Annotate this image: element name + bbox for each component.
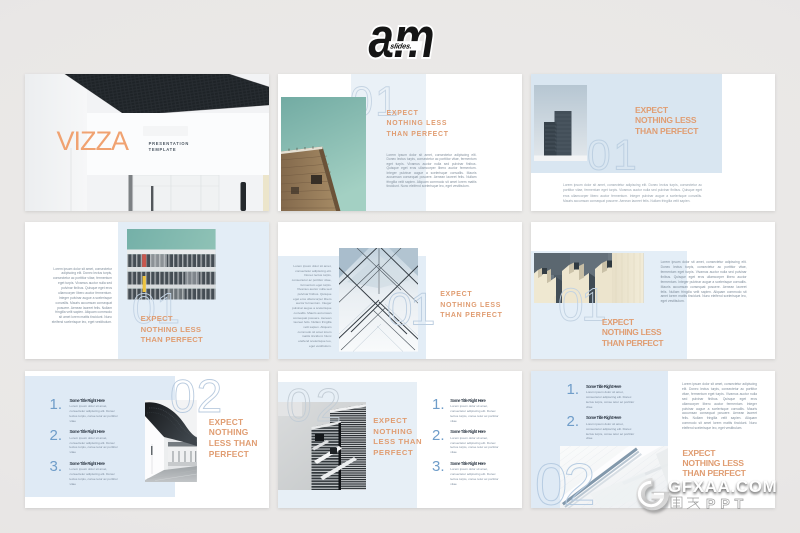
svg-text:02: 02: [286, 379, 345, 431]
svg-text:02: 02: [170, 371, 223, 422]
svg-text:slides.: slides.: [389, 42, 412, 51]
svg-text:01: 01: [387, 284, 434, 335]
svg-text:01: 01: [587, 133, 639, 180]
svg-text:PPT: PPT: [706, 496, 748, 512]
svg-text:am: am: [368, 14, 434, 66]
svg-text:01: 01: [558, 278, 605, 330]
